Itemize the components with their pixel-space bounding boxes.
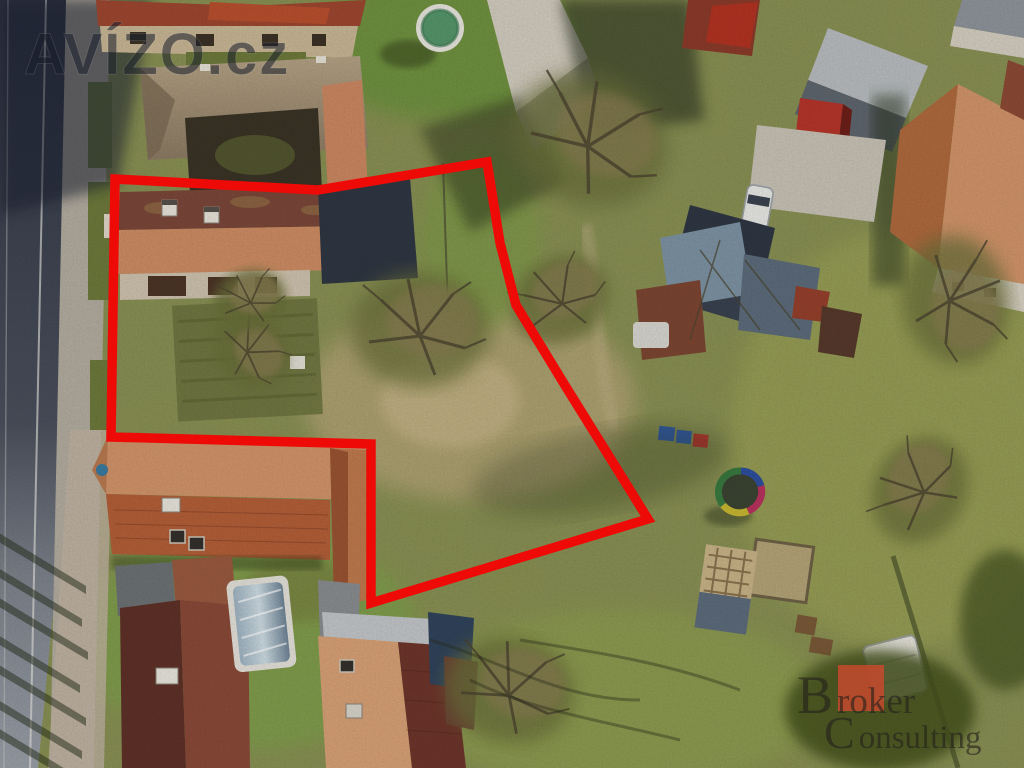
photo-grain [0, 0, 1024, 768]
logo-line2-initial: C [824, 707, 855, 758]
avizo-watermark: AVÍZO.cz [24, 22, 290, 87]
aerial-photo: AVÍZO.cz B roker C onsulting [0, 0, 1024, 768]
aerial-photo-canvas: AVÍZO.cz B roker C onsulting [0, 0, 1024, 768]
logo-line2-rest: onsulting [859, 720, 982, 756]
